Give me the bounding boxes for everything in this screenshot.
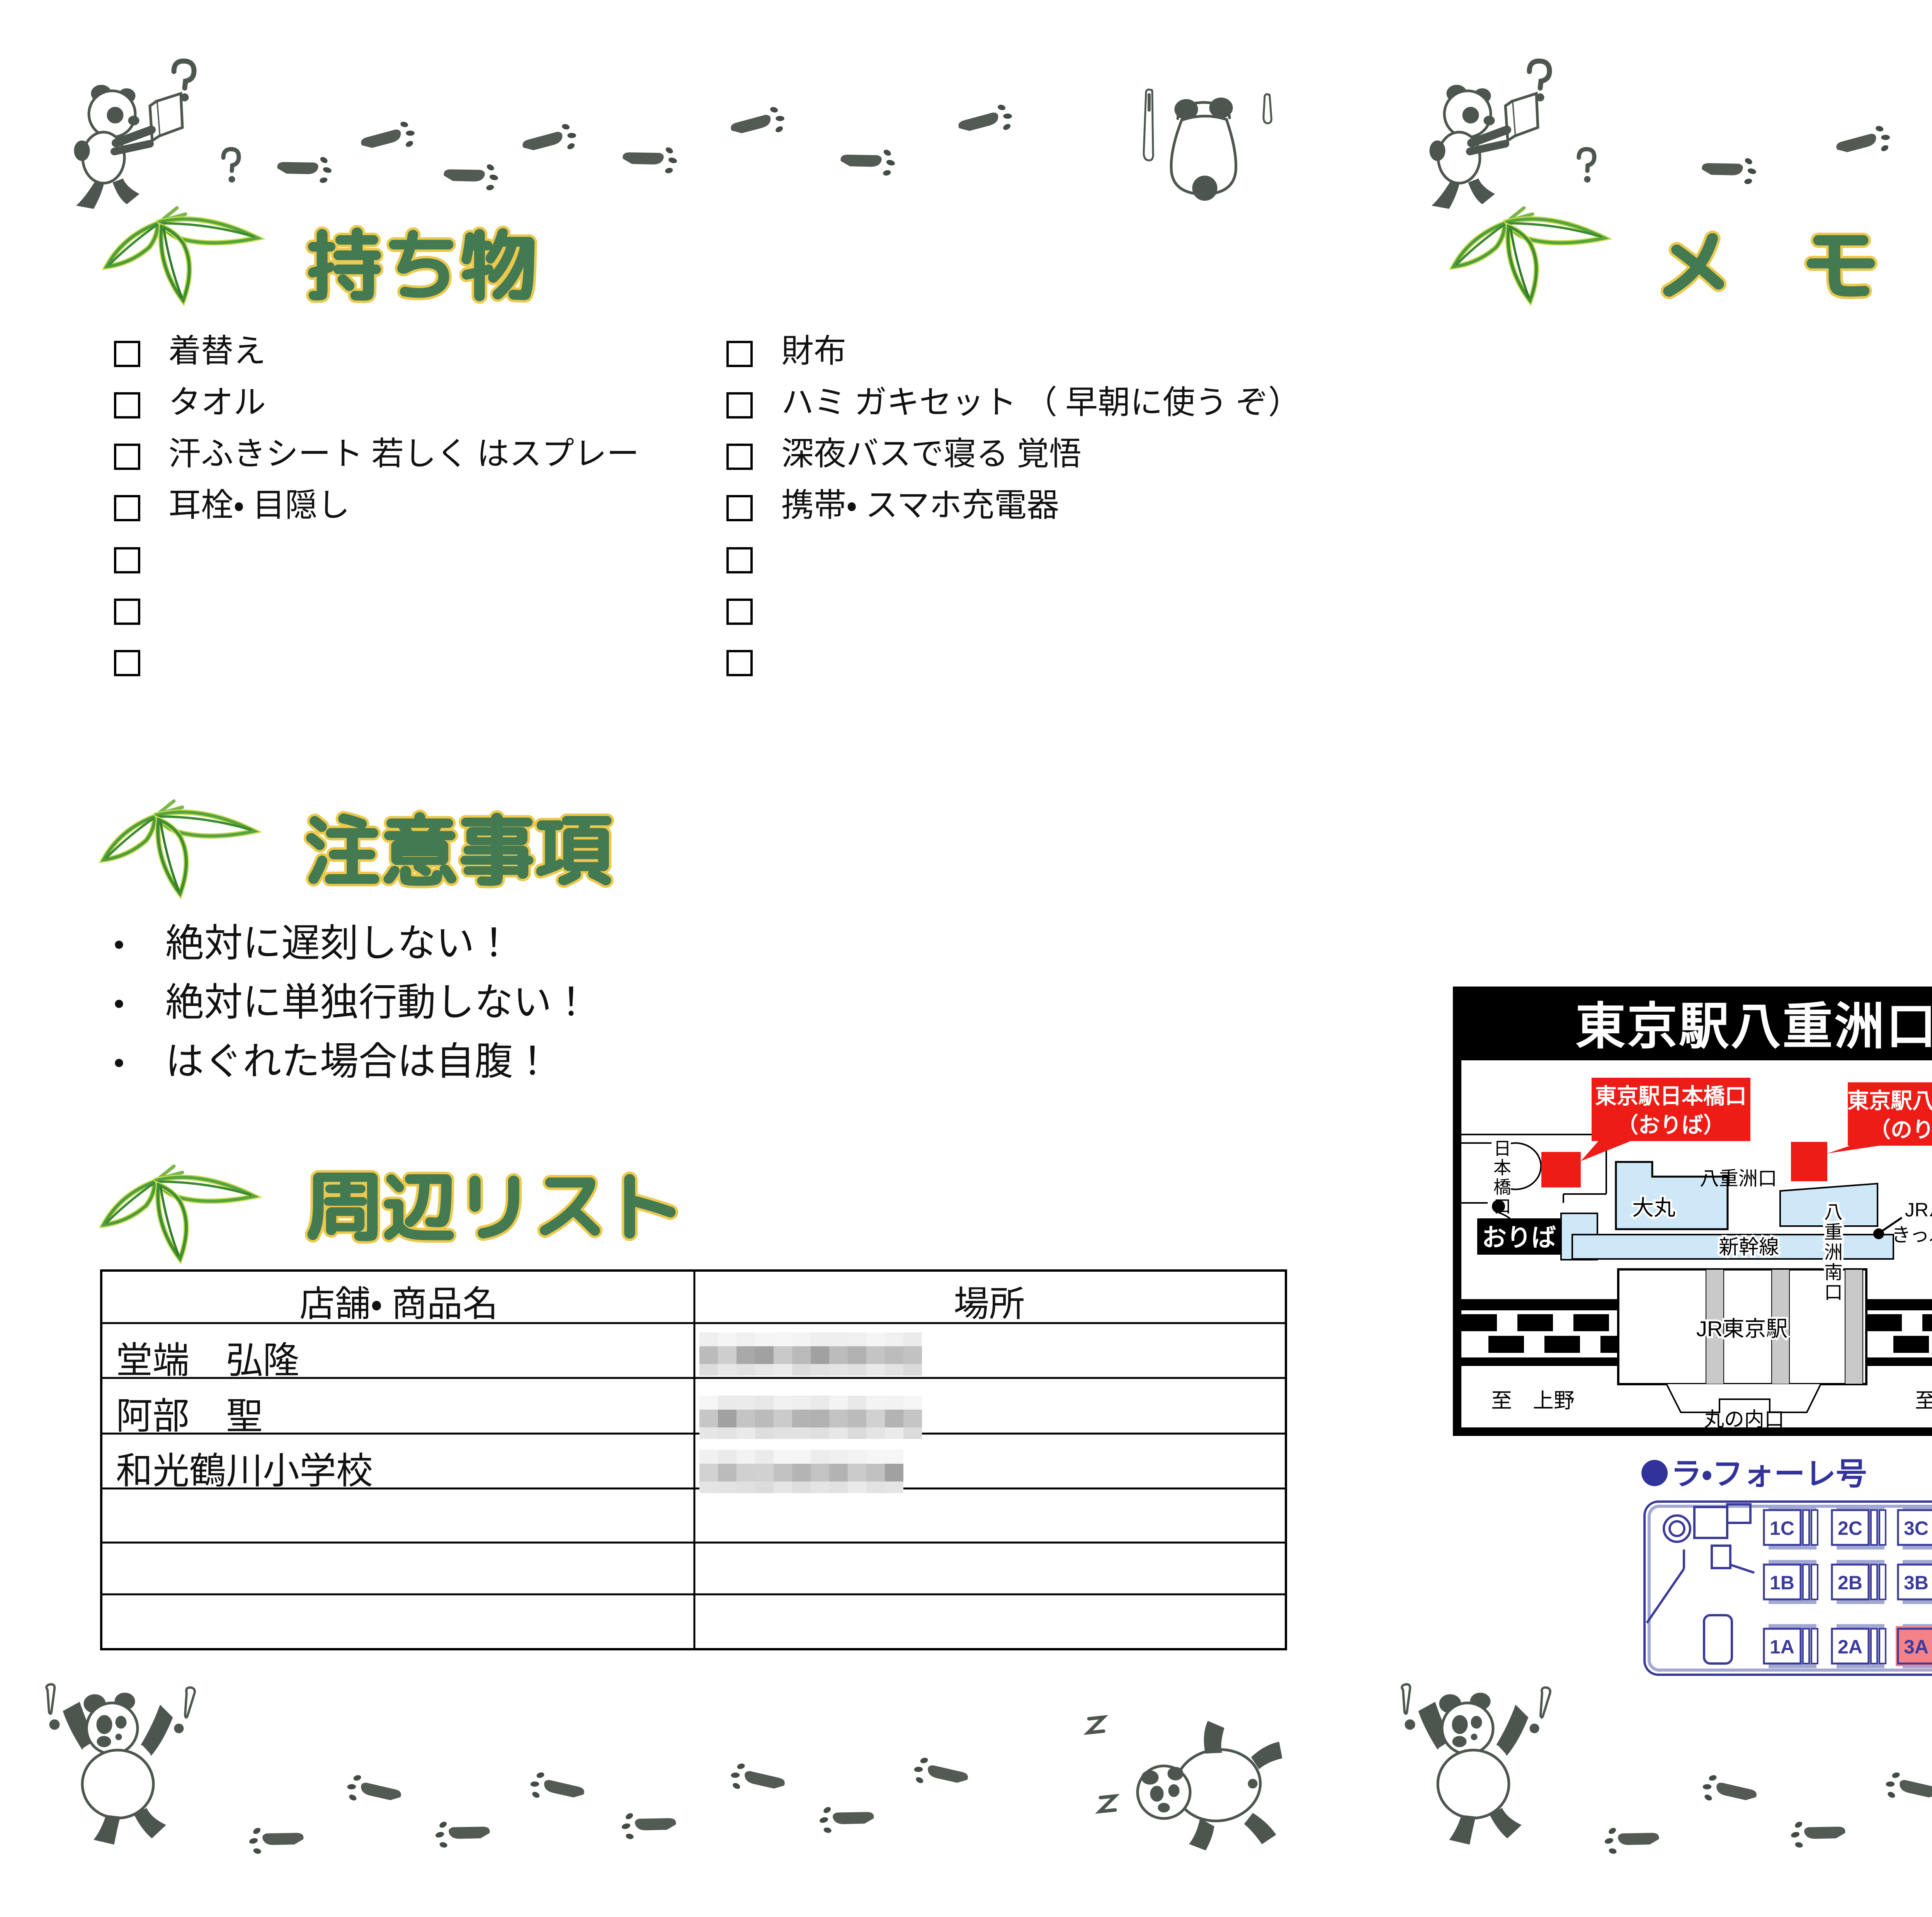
svg-text:至 品川: 至 品川 bbox=[1915, 1389, 1932, 1412]
svg-text:JRバス: JRバス bbox=[1905, 1199, 1932, 1221]
svg-text:おりば: おりば bbox=[1482, 1224, 1556, 1252]
svg-text:新幹線: 新幹線 bbox=[1719, 1236, 1779, 1259]
svg-text:2B: 2B bbox=[1838, 1572, 1862, 1594]
svg-text:八重洲口: 八重洲口 bbox=[1700, 1168, 1777, 1189]
svg-text:持ち物: 持ち物 bbox=[305, 223, 537, 310]
svg-text:周辺リスト: 周辺リスト bbox=[306, 1165, 683, 1250]
svg-text:東京駅日本橋口: 東京駅日本橋口 bbox=[1595, 1084, 1747, 1108]
svg-text:八重洲南口: 八重洲南口 bbox=[1824, 1202, 1843, 1303]
svg-text:至 上野: 至 上野 bbox=[1491, 1389, 1575, 1412]
svg-text:きっぷうりば: きっぷうりば bbox=[1891, 1224, 1932, 1246]
svg-text:1B: 1B bbox=[1770, 1572, 1794, 1594]
svg-text:（のりば）: （のりば） bbox=[1869, 1118, 1932, 1142]
svg-text:1A: 1A bbox=[1770, 1636, 1794, 1658]
svg-text:大丸: 大丸 bbox=[1632, 1196, 1675, 1220]
svg-text:東京駅八重洲口: 東京駅八重洲口 bbox=[1575, 998, 1932, 1055]
svg-text:メモ: メモ bbox=[1655, 223, 1879, 310]
svg-text:（おりば）: （おりば） bbox=[1617, 1113, 1725, 1137]
svg-text:丸の内口: 丸の内口 bbox=[1704, 1408, 1784, 1431]
svg-text:3C: 3C bbox=[1904, 1517, 1929, 1539]
svg-text:2C: 2C bbox=[1838, 1517, 1862, 1539]
svg-text:2A: 2A bbox=[1838, 1636, 1862, 1658]
svg-text:JR東京駅: JR東京駅 bbox=[1696, 1317, 1787, 1341]
svg-text:1C: 1C bbox=[1770, 1517, 1794, 1539]
svg-text:ラ・フォーレ号: ラ・フォーレ号 bbox=[1671, 1457, 1867, 1491]
svg-text:3A: 3A bbox=[1904, 1636, 1929, 1658]
svg-text:3B: 3B bbox=[1904, 1572, 1929, 1594]
svg-text:東京駅八重洲口: 東京駅八重洲口 bbox=[1847, 1089, 1932, 1113]
svg-text:注意事項: 注意事項 bbox=[304, 808, 613, 895]
